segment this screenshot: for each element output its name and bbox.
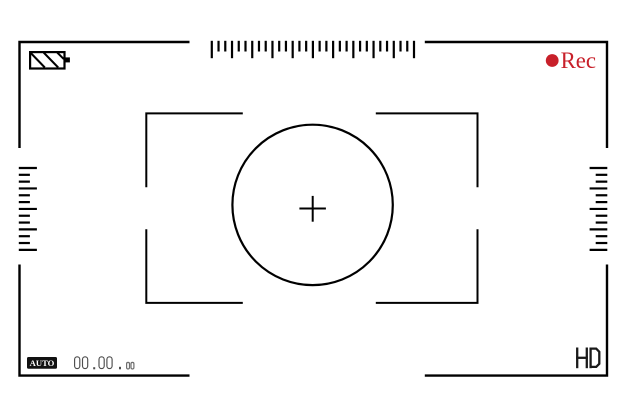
- svg-text:Rec: Rec: [561, 48, 596, 73]
- svg-text:AUTO: AUTO: [30, 358, 55, 368]
